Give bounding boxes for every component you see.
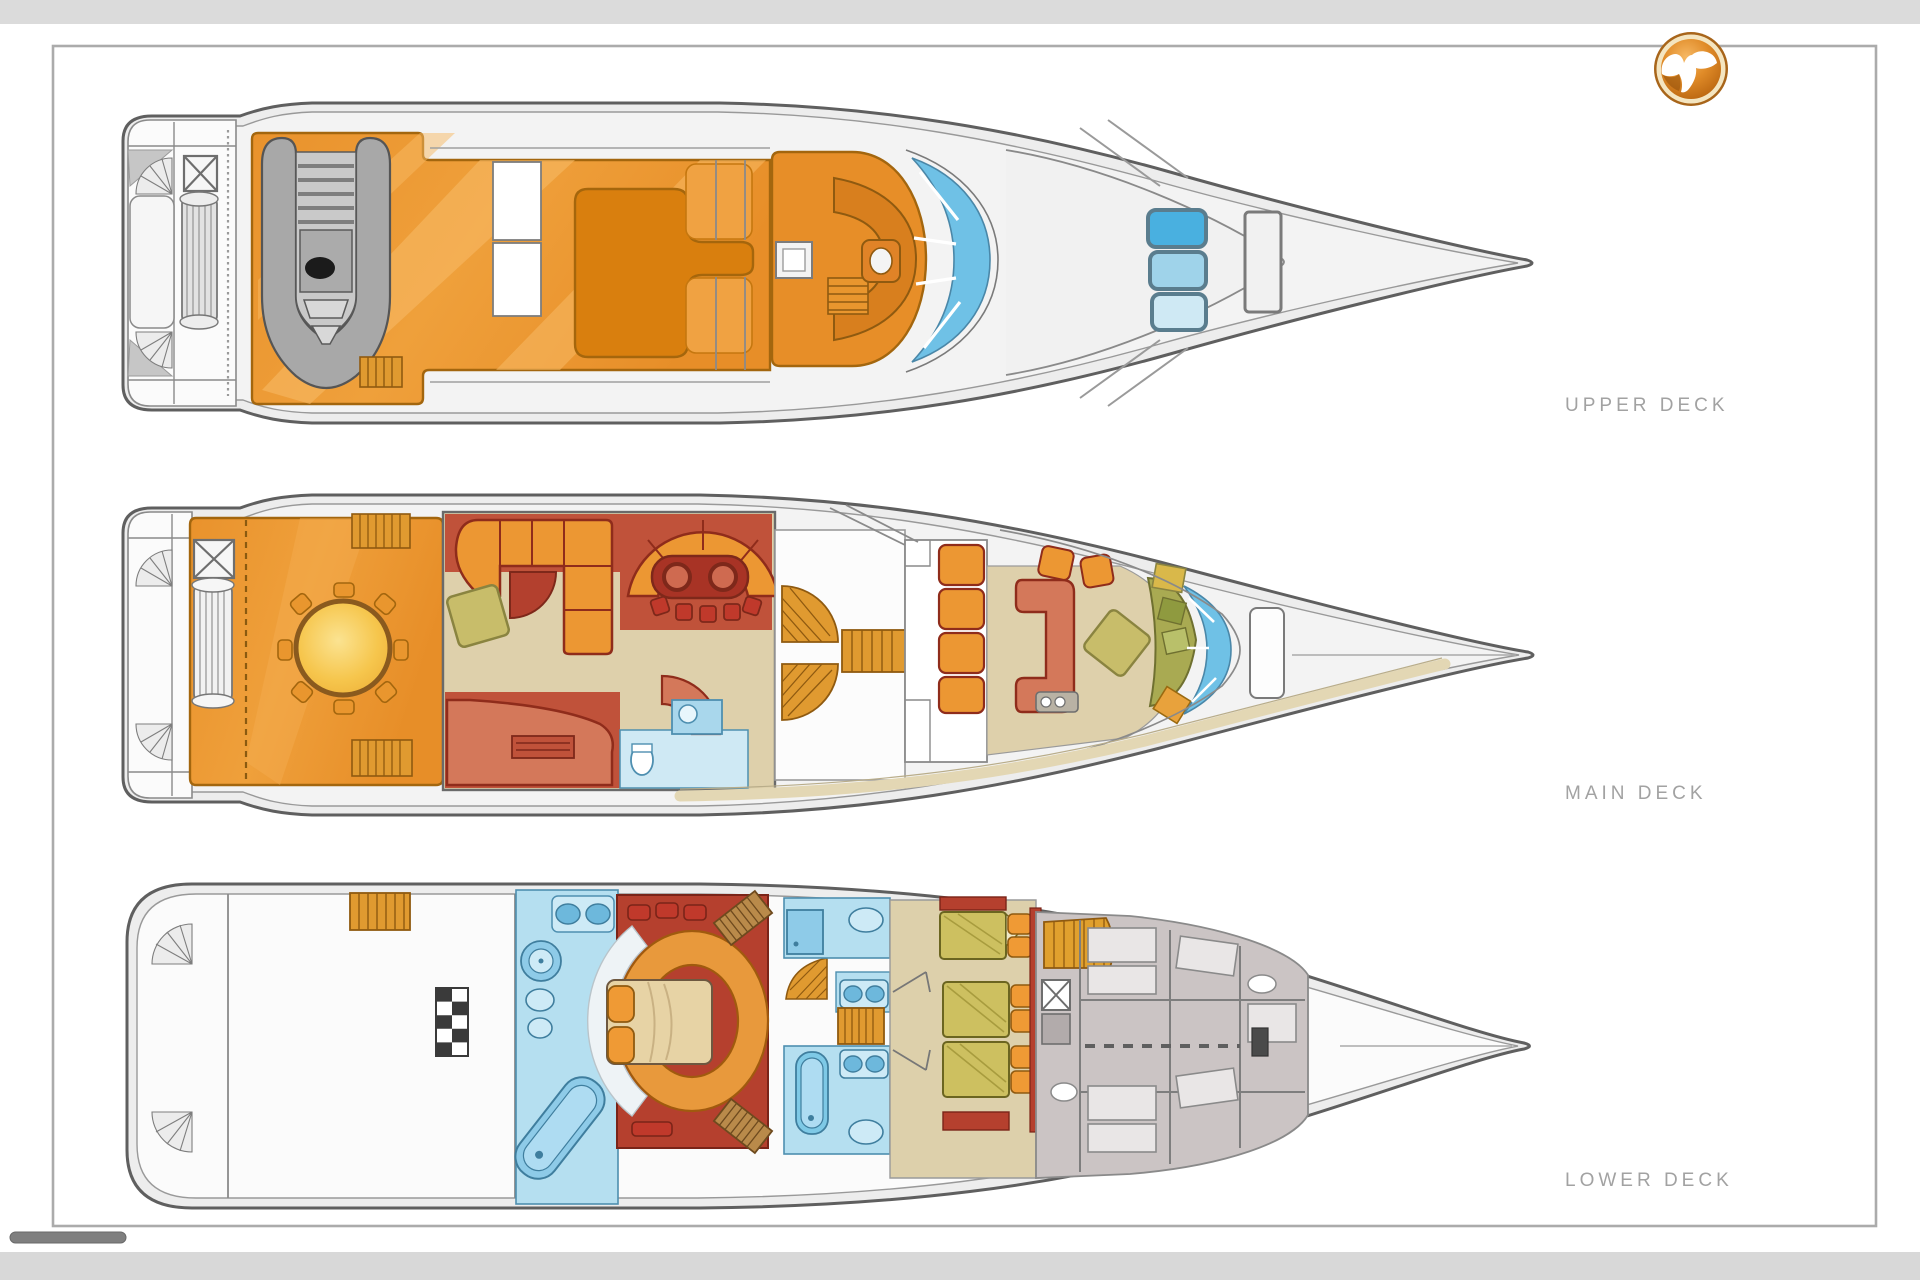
- svg-text:MAIN DECK: MAIN DECK: [1565, 783, 1707, 804]
- svg-text:LOWER DECK: LOWER DECK: [1565, 1170, 1733, 1191]
- svg-text:UPPER DECK: UPPER DECK: [1565, 395, 1729, 416]
